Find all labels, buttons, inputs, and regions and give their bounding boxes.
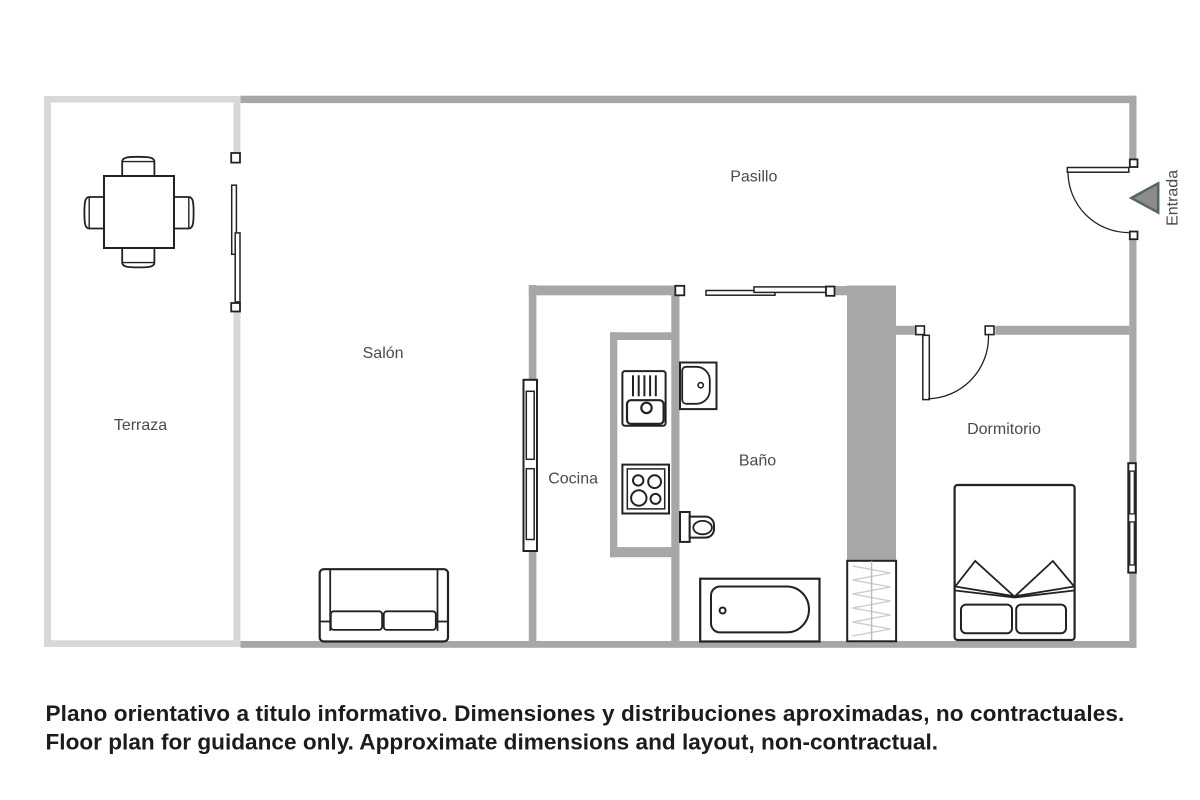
svg-text:Dormitorio: Dormitorio <box>967 421 1041 438</box>
svg-text:Baño: Baño <box>739 453 776 470</box>
svg-text:Plano orientativo a titulo inf: Plano orientativo a titulo informativo. … <box>46 701 1125 726</box>
svg-text:Entrada: Entrada <box>1165 170 1182 226</box>
svg-text:Salón: Salón <box>363 345 404 362</box>
svg-text:Pasillo: Pasillo <box>730 169 777 186</box>
svg-text:Terraza: Terraza <box>114 417 167 434</box>
svg-text:Floor plan for guidance only.: Floor plan for guidance only. Approximat… <box>46 730 939 755</box>
svg-text:Cocina: Cocina <box>548 471 598 488</box>
